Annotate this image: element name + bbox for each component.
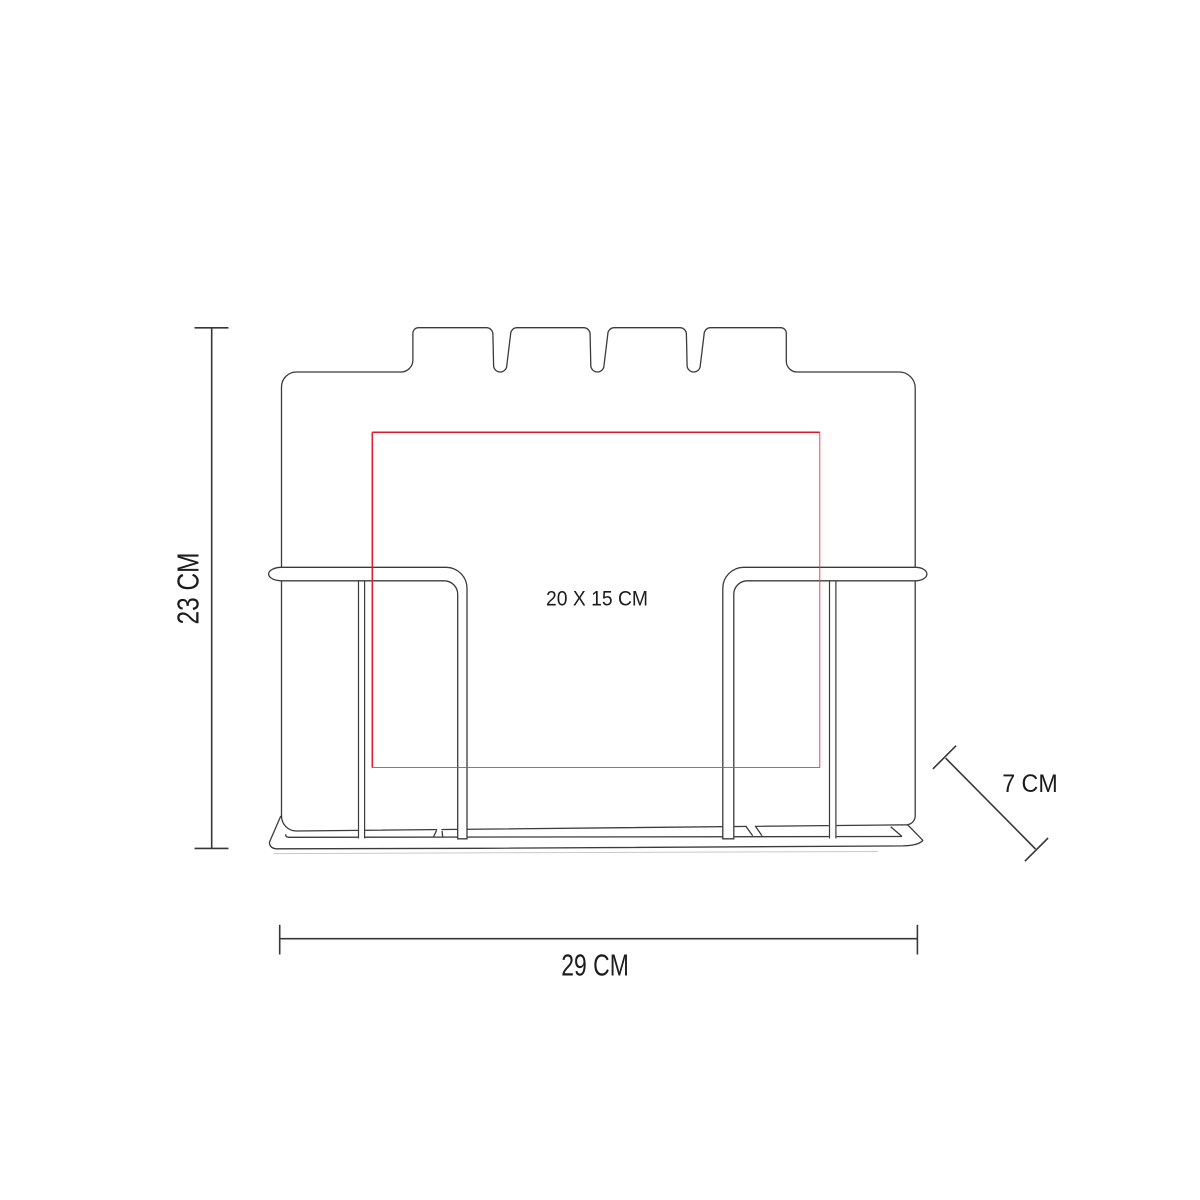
svg-text:23 CM: 23 CM: [171, 553, 206, 625]
svg-text:20 X 15 CM: 20 X 15 CM: [546, 587, 648, 610]
svg-text:29 CM: 29 CM: [561, 947, 629, 982]
svg-text:7 CM: 7 CM: [1002, 770, 1057, 798]
